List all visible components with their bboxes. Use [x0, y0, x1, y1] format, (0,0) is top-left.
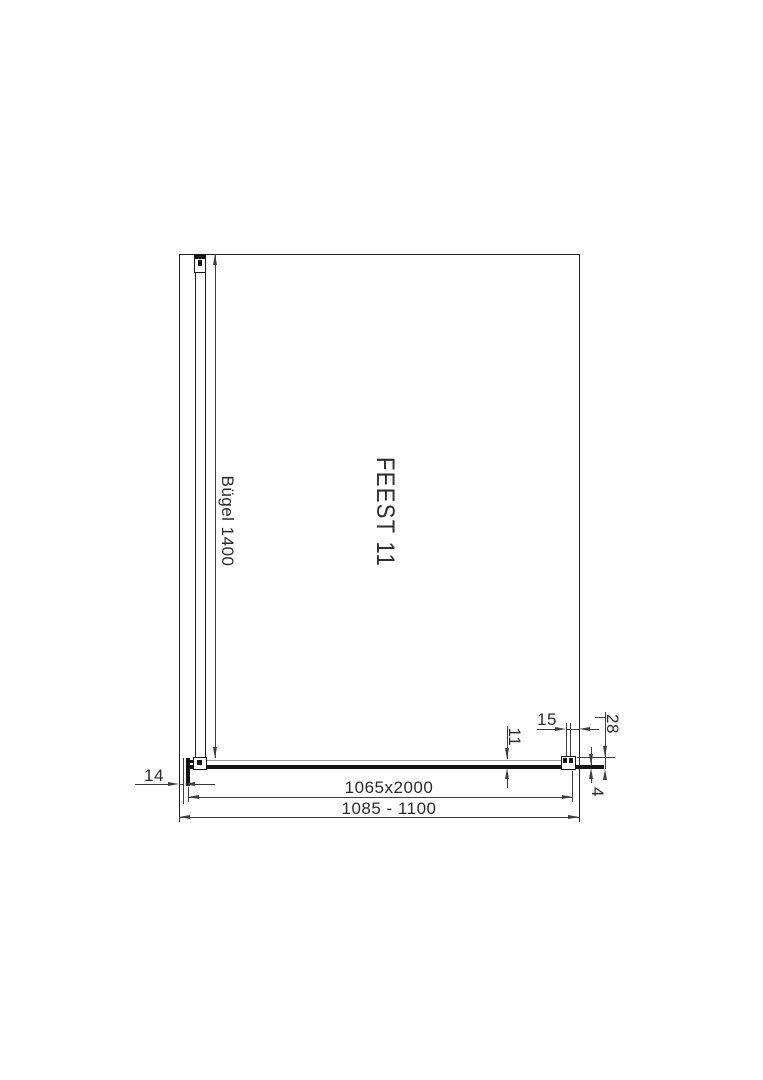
technical-drawing-canvas: Bügel 1400 FEEST 11 14 1065x2000 1085 - … [0, 0, 763, 1080]
dim-arrow-stabilizer-top [213, 254, 217, 265]
dim-4-label: 4 [588, 783, 606, 801]
dim-niche-label: 1085 - 1100 [319, 799, 459, 819]
dim-4-arrow-down [589, 754, 593, 765]
product-name-label: FEEST 11 [372, 459, 398, 565]
wall-left-line [179, 254, 180, 822]
dim-15-arrow-right [579, 727, 590, 731]
stabilizer-glass-bracket-screw [197, 760, 202, 765]
dim-arrow-stabilizer-bottom [213, 747, 217, 758]
dim-4-arrow-up [589, 768, 593, 779]
dim-11-label: 11 [505, 724, 523, 750]
glass-panel-body [188, 765, 604, 769]
dim-glass-arrow-left [188, 795, 199, 799]
dim-15-mid [566, 729, 579, 730]
glass-panel-top-edge [197, 760, 563, 761]
dim-glass-label: 1065x2000 [319, 778, 459, 798]
dim-11-line-bottom [507, 779, 508, 788]
dim-15-label: 15 [532, 710, 562, 730]
dim-14-arrow-left [168, 782, 179, 786]
dim-11-arrow-up [505, 768, 509, 779]
glass-end-bracket-screw-1 [563, 758, 567, 763]
stabilizer-wall-bracket-plate [195, 255, 205, 259]
stabilizer-bar-right-line [205, 273, 206, 757]
dim-14-label: 14 [140, 766, 168, 786]
dim-niche-arrow-right [568, 815, 579, 819]
dim-28-arrow-down [603, 746, 607, 757]
dim-15-tail-right [590, 729, 599, 730]
stabilizer-bar-left-line [195, 273, 196, 757]
stabilizer-wall-bracket-screw [198, 260, 202, 266]
dim-14-ext-line [183, 758, 184, 804]
dim-28-arrow-up [603, 769, 607, 780]
dim-14-arrow-right [184, 782, 195, 786]
dim-15-ext-line-2 [570, 723, 571, 756]
dim-15-ext-line-1 [566, 723, 567, 756]
dim-niche-arrow-left [179, 815, 190, 819]
dim-14-tail-right [195, 784, 215, 785]
dim-28-label: 28 [603, 709, 621, 739]
stabilizer-dim-label: Bügel 1400 [217, 465, 237, 577]
dim-glass-arrow-right [562, 795, 573, 799]
wall-back-line [179, 254, 580, 255]
wall-right-line [579, 254, 580, 822]
dim-line-stabilizer [215, 254, 216, 758]
glass-end-bracket-screw-2 [569, 758, 573, 763]
dim-28-ext-line [577, 757, 615, 758]
